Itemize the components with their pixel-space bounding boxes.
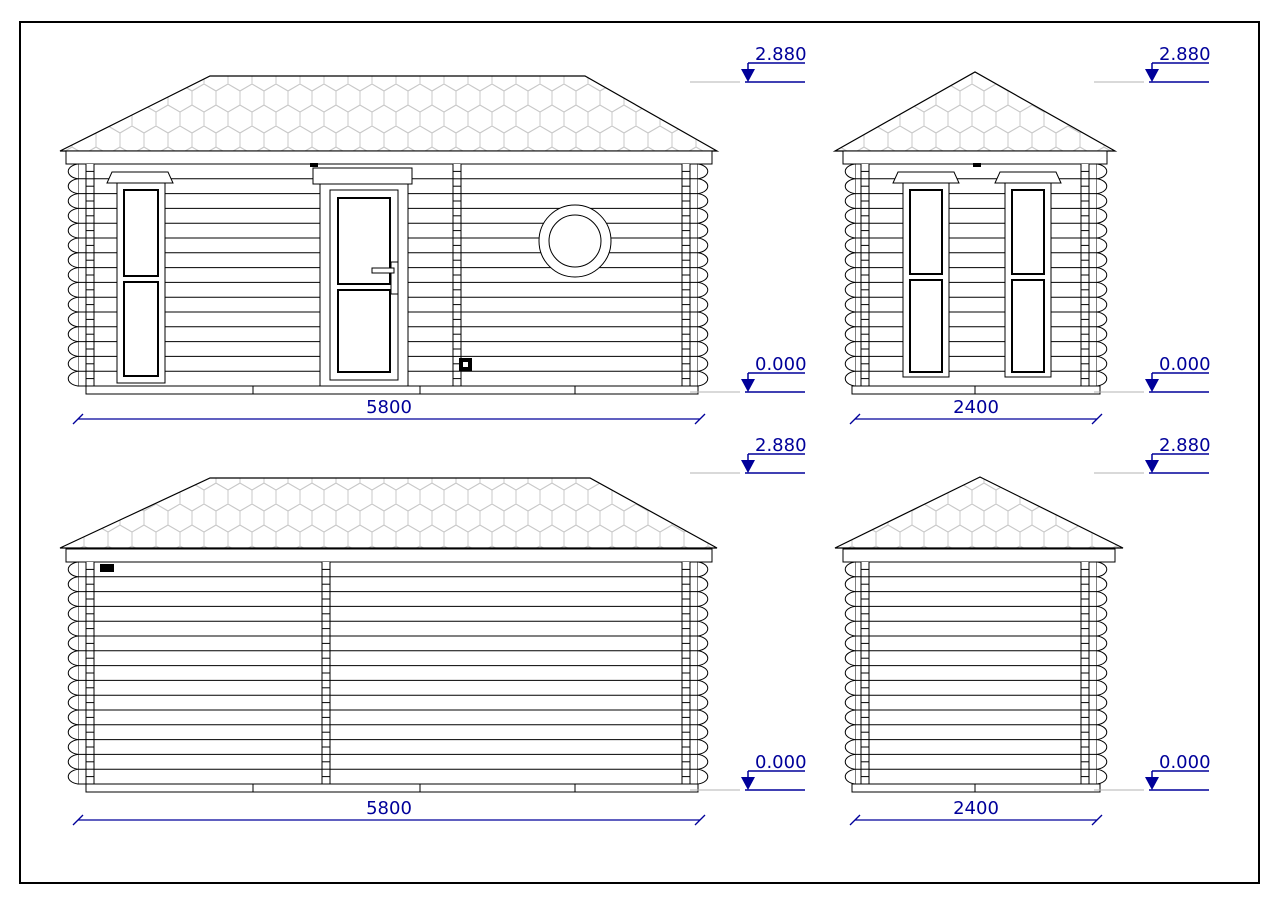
level-marker-ground-rear: 0.000: [690, 752, 807, 790]
elevation-arrow-icon: [1145, 460, 1159, 473]
elevation-arrow-icon: [741, 69, 755, 82]
elevation-arrow-icon: [741, 379, 755, 392]
level-marker-roof-rear: 2.880: [690, 435, 807, 473]
front-window-pediment: [107, 172, 173, 183]
level-marker-ground-side2: 0.000: [1094, 752, 1211, 790]
front-middle-joint: [453, 164, 461, 386]
elevation-arrow-icon: [1145, 379, 1159, 392]
side2-right-log-ends: [1097, 562, 1107, 784]
door-header: [313, 168, 412, 184]
elevation-arrow-icon: [1145, 777, 1159, 790]
dimension-side-width: 2400: [850, 397, 1102, 424]
side-base-plinth: [852, 386, 1100, 394]
side-window-1-pediment: [893, 172, 959, 183]
rear-right-corner-joint: [682, 562, 690, 784]
dimension-value: 5800: [366, 798, 412, 819]
front-door: [313, 168, 412, 386]
rear-elevation-view: [60, 478, 717, 792]
level-marker-ground-front: 0.000: [690, 354, 807, 392]
rear-wall: [78, 562, 698, 784]
dimension-value: 5800: [366, 397, 412, 418]
side2-fascia: [843, 549, 1115, 562]
side-right-corner-joint: [1081, 164, 1089, 386]
level-value-roof: 2.880: [755, 44, 807, 65]
rear-left-log-ends: [68, 562, 78, 784]
front-window-lower-pane: [124, 282, 158, 376]
level-value-roof: 2.880: [755, 435, 807, 456]
rear-fascia: [66, 549, 712, 562]
side-wall: [855, 164, 1097, 386]
dimension-value: 2400: [953, 798, 999, 819]
front-elevation-view: [60, 76, 717, 394]
door-handle: [372, 268, 394, 273]
side-left-corner-joint: [861, 164, 869, 386]
elevation-arrow-icon: [1145, 69, 1159, 82]
round-window-glass: [549, 215, 601, 267]
rear-right-log-ends: [698, 562, 708, 784]
drawing-sheet: 2.880 2.880 0.000 0.000 2.880: [0, 0, 1279, 905]
rear-left-corner-joint: [86, 562, 94, 784]
side-elevation-view: [835, 72, 1115, 394]
door-lower-panel: [338, 290, 390, 372]
dimension-front-width: 5800: [73, 397, 705, 424]
side-left-log-ends: [845, 164, 855, 386]
rear-roof: [60, 478, 717, 548]
rear-vent: [100, 564, 114, 572]
front-base-plinth: [86, 386, 698, 394]
side2-right-corner-joint: [1081, 562, 1089, 784]
front-right-log-ends: [698, 164, 708, 386]
dimension-value: 2400: [953, 397, 999, 418]
side-fascia: [843, 151, 1107, 164]
front-round-window: [539, 205, 611, 277]
dimension-rear-width: 5800: [73, 798, 705, 825]
level-value-ground: 0.000: [1159, 354, 1211, 375]
front-left-corner-joint: [86, 164, 94, 386]
level-value-roof: 2.880: [1159, 44, 1211, 65]
side-window-2-pediment: [995, 172, 1061, 183]
level-marker-roof-side2: 2.880: [1094, 435, 1211, 473]
side-right-log-ends: [1097, 164, 1107, 386]
rear-base-plinth: [86, 784, 698, 792]
front-window-upper-pane: [124, 190, 158, 276]
dimension-side2-width: 2400: [850, 798, 1102, 825]
side-roof: [835, 72, 1115, 151]
side-window-1-lower-pane: [910, 280, 942, 372]
side-window-2: [995, 172, 1061, 377]
level-marker-roof-front: 2.880: [690, 44, 807, 82]
level-marker-roof-side: 2.880: [1094, 44, 1211, 82]
door-lock-plate: [391, 262, 398, 294]
level-value-roof: 2.880: [1159, 435, 1211, 456]
side2-wall: [855, 562, 1097, 784]
side-window-1: [893, 172, 959, 377]
side-window-1-upper-pane: [910, 190, 942, 274]
front-electrical-box: [459, 358, 472, 371]
side2-left-log-ends: [845, 562, 855, 784]
front-roof-mark: [310, 163, 318, 167]
front-window: [107, 172, 173, 383]
elevation-arrow-icon: [741, 460, 755, 473]
elevation-arrow-icon: [741, 777, 755, 790]
architectural-elevations-drawing: 2.880 2.880 0.000 0.000 2.880: [0, 0, 1279, 905]
front-right-corner-joint: [682, 164, 690, 386]
front-fascia: [66, 151, 712, 164]
side-window-2-upper-pane: [1012, 190, 1044, 274]
side2-roof: [835, 477, 1123, 548]
level-value-ground: 0.000: [755, 752, 807, 773]
level-marker-ground-side: 0.000: [1094, 354, 1211, 392]
level-value-ground: 0.000: [755, 354, 807, 375]
side2-base-plinth: [852, 784, 1100, 792]
rear-middle-joint: [322, 562, 330, 784]
front-roof: [60, 76, 717, 151]
side-roof-mark: [973, 163, 981, 167]
side2-elevation-view: [835, 477, 1123, 792]
side-window-2-lower-pane: [1012, 280, 1044, 372]
side2-left-corner-joint: [861, 562, 869, 784]
front-left-log-ends: [68, 164, 78, 386]
level-value-ground: 0.000: [1159, 752, 1211, 773]
